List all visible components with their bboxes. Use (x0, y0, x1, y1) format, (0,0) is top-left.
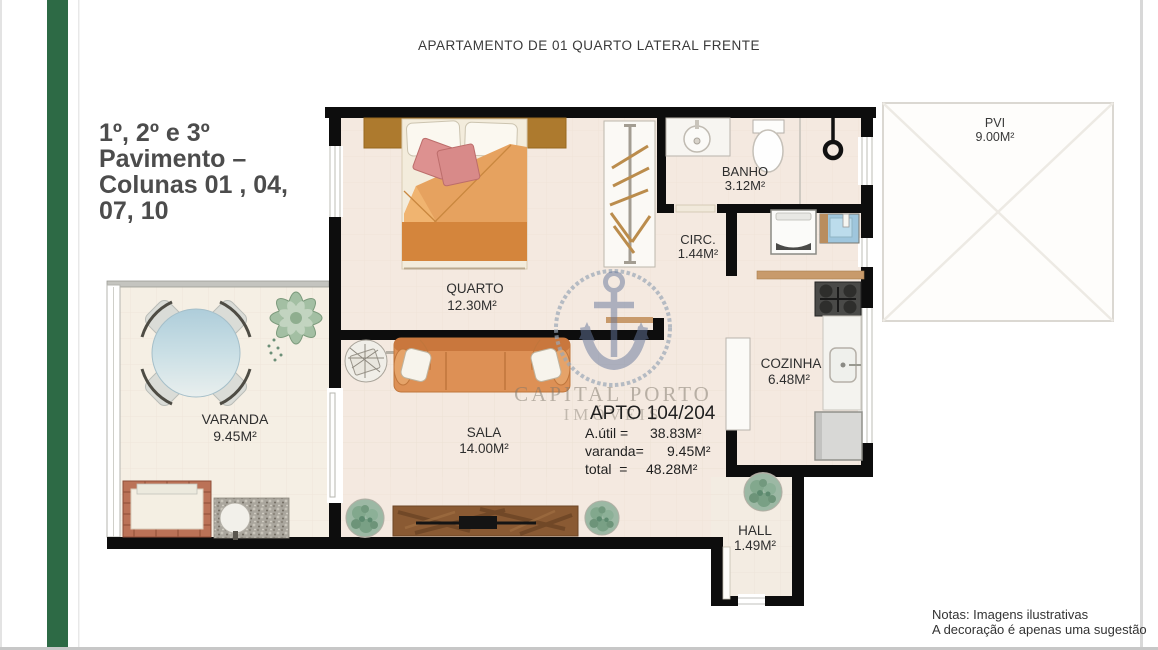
svg-text:38.83M²: 38.83M² (650, 425, 702, 441)
svg-text:9.45M²: 9.45M² (213, 428, 257, 444)
svg-text:A decoração é apenas uma suges: A decoração é apenas uma sugestão (932, 622, 1147, 637)
svg-text:HALL: HALL (738, 523, 772, 538)
svg-text:6.48M²: 6.48M² (768, 372, 811, 387)
svg-text:A.útil =: A.útil = (585, 425, 628, 441)
svg-text:9.45M²: 9.45M² (667, 443, 711, 459)
svg-text:BANHO: BANHO (722, 164, 768, 179)
svg-text:1.49M²: 1.49M² (734, 538, 777, 553)
svg-text:APARTAMENTO DE 01 QUARTO LATER: APARTAMENTO DE 01 QUARTO LATERAL FRENTE (418, 38, 760, 53)
svg-text:PVI: PVI (985, 116, 1005, 130)
svg-text:Colunas 01 , 04,: Colunas 01 , 04, (99, 171, 288, 199)
svg-text:3.12M²: 3.12M² (725, 178, 766, 193)
svg-text:SALA: SALA (467, 425, 502, 440)
svg-text:QUARTO: QUARTO (446, 281, 503, 296)
svg-text:total =: total = (585, 461, 627, 477)
svg-text:COZINHA: COZINHA (761, 356, 822, 371)
svg-text:12.30M²: 12.30M² (447, 298, 497, 313)
svg-text:VARANDA: VARANDA (202, 411, 269, 427)
svg-text:1.44M²: 1.44M² (678, 246, 719, 261)
svg-text:CIRC.: CIRC. (680, 232, 715, 247)
svg-text:14.00M²: 14.00M² (459, 441, 509, 456)
svg-text:varanda=: varanda= (585, 443, 644, 459)
svg-text:48.28M²: 48.28M² (646, 461, 698, 477)
svg-text:APTO 104/204: APTO 104/204 (590, 403, 716, 424)
svg-text:9.00M²: 9.00M² (976, 130, 1015, 144)
svg-text:07, 10: 07, 10 (99, 197, 169, 225)
svg-text:Pavimento –: Pavimento – (99, 145, 246, 173)
svg-text:Notas: Imagens ilustrativas: Notas: Imagens ilustrativas (932, 607, 1089, 622)
svg-text:1º, 2º e 3º: 1º, 2º e 3º (99, 119, 210, 147)
